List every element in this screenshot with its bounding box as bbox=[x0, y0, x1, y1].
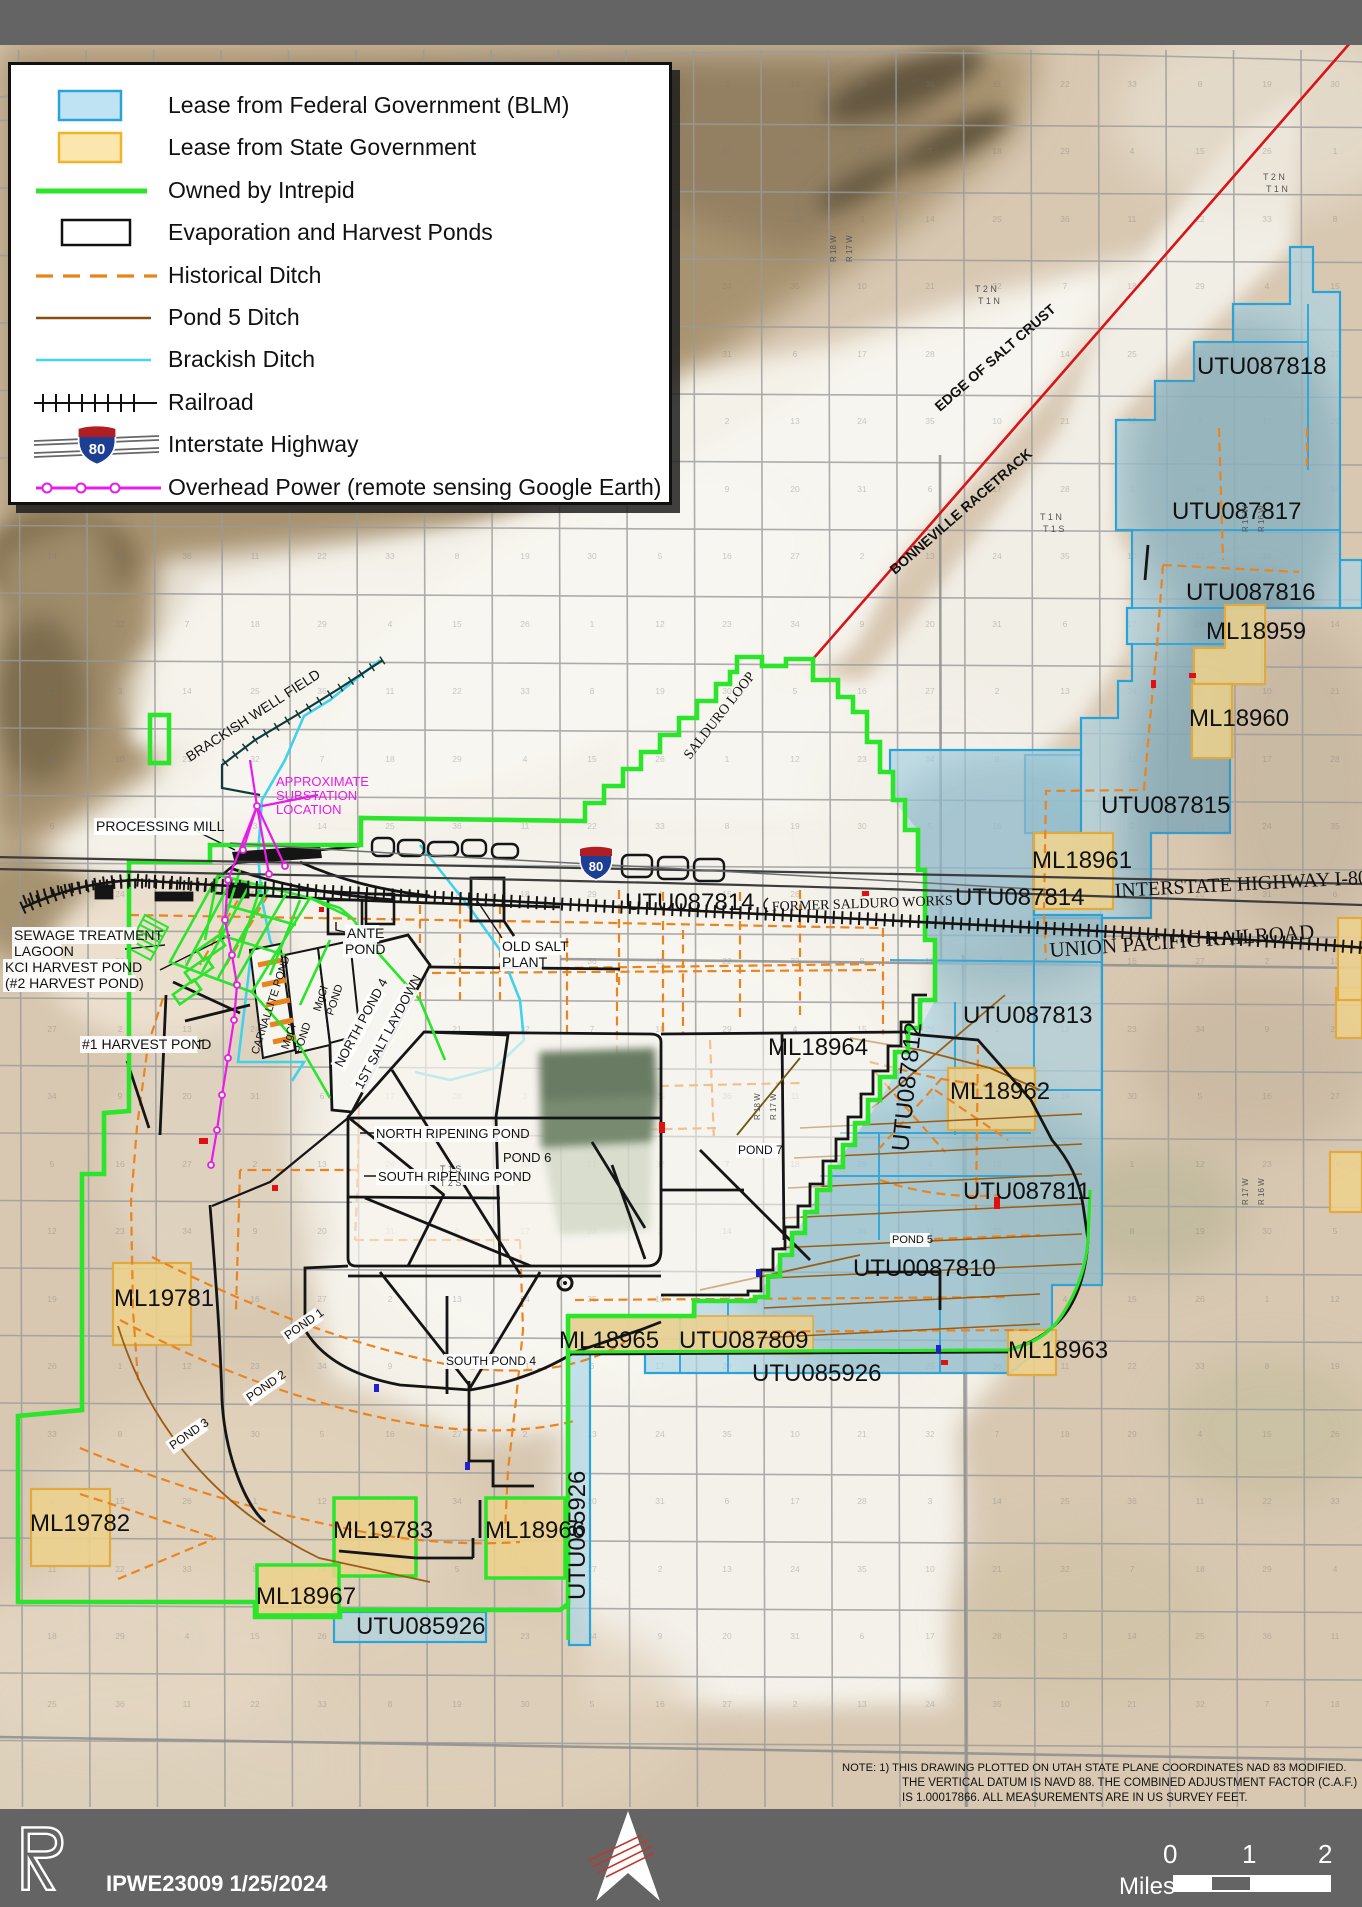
svg-text:ML19783: ML19783 bbox=[333, 1517, 433, 1544]
svg-text:21: 21 bbox=[790, 146, 800, 156]
svg-text:5: 5 bbox=[50, 1159, 55, 1169]
svg-text:9: 9 bbox=[253, 1226, 258, 1236]
svg-text:22: 22 bbox=[115, 1564, 125, 1574]
svg-text:T 2 N: T 2 N bbox=[975, 284, 997, 294]
svg-text:7: 7 bbox=[928, 146, 933, 156]
svg-text:R 17 W: R 17 W bbox=[1241, 1178, 1250, 1205]
svg-text:ML18962: ML18962 bbox=[950, 1078, 1050, 1105]
svg-text:22: 22 bbox=[1262, 1496, 1272, 1506]
svg-text:28: 28 bbox=[925, 349, 935, 359]
svg-text:14: 14 bbox=[1127, 1631, 1137, 1641]
svg-text:36: 36 bbox=[317, 686, 327, 696]
svg-text:17: 17 bbox=[857, 349, 867, 359]
svg-text:6: 6 bbox=[725, 1496, 730, 1506]
svg-text:ML19782: ML19782 bbox=[30, 1510, 130, 1537]
svg-text:4: 4 bbox=[523, 754, 528, 764]
svg-text:T 1 N: T 1 N bbox=[1266, 184, 1288, 194]
svg-text:27: 27 bbox=[317, 1294, 327, 1304]
svg-text:UTU085926: UTU085926 bbox=[752, 1360, 881, 1387]
svg-text:18: 18 bbox=[1060, 1429, 1070, 1439]
svg-text:ML18961: ML18961 bbox=[1032, 847, 1132, 874]
svg-text:19: 19 bbox=[1262, 79, 1272, 89]
svg-text:15: 15 bbox=[587, 754, 597, 764]
svg-text:24: 24 bbox=[925, 1699, 935, 1709]
svg-text:35: 35 bbox=[925, 416, 935, 426]
svg-text:19: 19 bbox=[790, 821, 800, 831]
svg-text:28: 28 bbox=[992, 1631, 1002, 1641]
svg-text:R 17 W: R 17 W bbox=[769, 1093, 778, 1120]
svg-text:16: 16 bbox=[655, 1699, 665, 1709]
svg-text:11: 11 bbox=[993, 79, 1002, 89]
svg-text:1: 1 bbox=[1265, 1294, 1270, 1304]
svg-text:7: 7 bbox=[1265, 1699, 1270, 1709]
svg-text:11: 11 bbox=[1128, 214, 1137, 224]
svg-text:8: 8 bbox=[388, 1699, 393, 1709]
svg-text:7: 7 bbox=[1063, 281, 1068, 291]
svg-text:POND 6: POND 6 bbox=[503, 1150, 551, 1165]
svg-text:PROCESSING MILL: PROCESSING MILL bbox=[96, 818, 225, 834]
svg-text:14: 14 bbox=[1060, 349, 1070, 359]
svg-text:5: 5 bbox=[658, 551, 663, 561]
svg-text:ML18963: ML18963 bbox=[1008, 1337, 1108, 1364]
svg-text:T 1 S: T 1 S bbox=[440, 1164, 461, 1174]
svg-text:UTU087809: UTU087809 bbox=[679, 1327, 808, 1354]
svg-text:32: 32 bbox=[250, 754, 260, 764]
svg-text:14: 14 bbox=[182, 686, 192, 696]
svg-text:13: 13 bbox=[182, 1024, 192, 1034]
svg-text:30: 30 bbox=[1127, 1091, 1137, 1101]
svg-text:29: 29 bbox=[115, 1631, 125, 1641]
svg-text:8: 8 bbox=[1265, 1361, 1270, 1371]
svg-text:36: 36 bbox=[115, 1699, 125, 1709]
svg-text:33: 33 bbox=[1330, 1496, 1340, 1506]
svg-text:14: 14 bbox=[925, 214, 935, 224]
svg-text:1: 1 bbox=[253, 1496, 258, 1506]
svg-text:8: 8 bbox=[590, 686, 595, 696]
svg-text:12: 12 bbox=[655, 619, 665, 629]
svg-text:1: 1 bbox=[118, 1361, 123, 1371]
svg-text:17: 17 bbox=[790, 1496, 800, 1506]
svg-text:24: 24 bbox=[1262, 821, 1272, 831]
svg-text:30: 30 bbox=[520, 1699, 530, 1709]
svg-text:23: 23 bbox=[115, 1226, 125, 1236]
svg-text:SOUTH POND 4: SOUTH POND 4 bbox=[446, 1354, 536, 1368]
svg-text:6: 6 bbox=[793, 349, 798, 359]
svg-text:24: 24 bbox=[115, 889, 125, 899]
svg-text:13: 13 bbox=[925, 551, 935, 561]
svg-text:21: 21 bbox=[1127, 1699, 1137, 1709]
svg-text:19: 19 bbox=[1330, 1361, 1340, 1371]
svg-text:15: 15 bbox=[250, 1631, 260, 1641]
svg-text:33: 33 bbox=[47, 1429, 57, 1439]
svg-text:12: 12 bbox=[790, 754, 800, 764]
svg-text:13: 13 bbox=[790, 416, 800, 426]
svg-text:16: 16 bbox=[1127, 956, 1137, 966]
svg-text:2: 2 bbox=[725, 416, 730, 426]
svg-text:T 1 S: T 1 S bbox=[1043, 524, 1064, 534]
svg-text:28: 28 bbox=[857, 1496, 867, 1506]
svg-text:6: 6 bbox=[928, 484, 933, 494]
svg-text:33: 33 bbox=[1127, 79, 1137, 89]
svg-text:24: 24 bbox=[992, 551, 1002, 561]
svg-text:26: 26 bbox=[520, 619, 530, 629]
svg-text:R 17 W: R 17 W bbox=[845, 235, 854, 262]
svg-text:29: 29 bbox=[452, 754, 462, 764]
svg-text:33: 33 bbox=[182, 1564, 192, 1574]
svg-text:NORTH RIPENING POND: NORTH RIPENING POND bbox=[376, 1126, 530, 1141]
svg-text:32: 32 bbox=[115, 619, 125, 629]
svg-text:80: 80 bbox=[89, 441, 106, 458]
svg-text:UTU085926: UTU085926 bbox=[356, 1613, 485, 1640]
svg-text:1: 1 bbox=[1130, 1159, 1135, 1169]
svg-text:UTU087814: UTU087814 bbox=[955, 884, 1084, 911]
svg-text:1: 1 bbox=[725, 754, 730, 764]
svg-text:30: 30 bbox=[857, 821, 867, 831]
svg-text:35: 35 bbox=[857, 1564, 867, 1574]
svg-text:10: 10 bbox=[722, 146, 732, 156]
svg-text:15: 15 bbox=[1195, 146, 1205, 156]
svg-text:18: 18 bbox=[1330, 1699, 1340, 1709]
svg-text:34: 34 bbox=[790, 619, 800, 629]
svg-text:10: 10 bbox=[992, 416, 1002, 426]
svg-text:R 18 W: R 18 W bbox=[753, 1093, 762, 1120]
svg-text:36: 36 bbox=[182, 551, 192, 561]
svg-text:24: 24 bbox=[857, 416, 867, 426]
svg-text:4: 4 bbox=[388, 619, 393, 629]
svg-text:(#2 HARVEST POND): (#2 HARVEST POND) bbox=[5, 975, 144, 991]
svg-text:32: 32 bbox=[1195, 1699, 1205, 1709]
svg-text:UTU087815: UTU087815 bbox=[1101, 792, 1230, 819]
svg-text:6: 6 bbox=[860, 1631, 865, 1641]
svg-text:31: 31 bbox=[722, 349, 732, 359]
svg-text:22: 22 bbox=[1127, 1361, 1137, 1371]
svg-text:33: 33 bbox=[317, 1699, 327, 1709]
svg-text:THE VERTICAL DATUM IS NAVD 88.: THE VERTICAL DATUM IS NAVD 88. THE COMBI… bbox=[902, 1777, 1357, 1789]
svg-text:34: 34 bbox=[452, 1496, 462, 1506]
svg-text:POND: POND bbox=[345, 941, 385, 957]
svg-text:SEWAGE TREATMENT: SEWAGE TREATMENT bbox=[14, 927, 164, 943]
svg-text:35: 35 bbox=[790, 281, 800, 291]
svg-text:9: 9 bbox=[1265, 1024, 1270, 1034]
svg-text:32: 32 bbox=[857, 146, 867, 156]
svg-text:12: 12 bbox=[1330, 1294, 1340, 1304]
svg-text:16: 16 bbox=[385, 1429, 395, 1439]
svg-text:35: 35 bbox=[47, 754, 57, 764]
svg-text:10: 10 bbox=[925, 1564, 935, 1574]
svg-text:14: 14 bbox=[1330, 619, 1340, 629]
svg-text:23: 23 bbox=[1262, 1159, 1272, 1169]
svg-text:ML18959: ML18959 bbox=[1206, 618, 1306, 645]
svg-text:25: 25 bbox=[1195, 1631, 1205, 1641]
svg-text:4: 4 bbox=[1265, 281, 1270, 291]
svg-text:ML18965: ML18965 bbox=[559, 1327, 659, 1354]
svg-text:UTU0087810: UTU0087810 bbox=[853, 1255, 996, 1282]
svg-text:13: 13 bbox=[317, 1159, 327, 1169]
svg-text:5: 5 bbox=[590, 1699, 595, 1709]
svg-text:29: 29 bbox=[1262, 1564, 1272, 1574]
svg-text:10: 10 bbox=[115, 754, 125, 764]
svg-text:8: 8 bbox=[118, 1429, 123, 1439]
svg-text:26: 26 bbox=[182, 1496, 192, 1506]
svg-text:11: 11 bbox=[1196, 1496, 1205, 1506]
svg-text:23: 23 bbox=[857, 754, 867, 764]
svg-text:5: 5 bbox=[1333, 1226, 1338, 1236]
svg-text:35: 35 bbox=[1330, 821, 1340, 831]
svg-text:20: 20 bbox=[722, 1631, 732, 1641]
svg-text:6: 6 bbox=[1063, 619, 1068, 629]
svg-text:OLD SALT: OLD SALT bbox=[502, 938, 569, 954]
svg-text:3: 3 bbox=[1063, 1631, 1068, 1641]
svg-text:19: 19 bbox=[452, 1699, 462, 1709]
svg-text:13: 13 bbox=[452, 1294, 462, 1304]
svg-text:26: 26 bbox=[1195, 1294, 1205, 1304]
svg-text:10: 10 bbox=[1060, 1699, 1070, 1709]
svg-text:11: 11 bbox=[251, 551, 260, 561]
svg-text:27: 27 bbox=[1195, 956, 1205, 966]
svg-text:NOTE: 1) THIS DRAWING PLOT: NOTE: 1) THIS DRAWING PLOTTED ON UTAH ST… bbox=[842, 1762, 1347, 1774]
svg-text:21: 21 bbox=[857, 1429, 867, 1439]
svg-text:8: 8 bbox=[1198, 79, 1203, 89]
svg-text:28: 28 bbox=[47, 686, 57, 696]
svg-text:LOCATION: LOCATION bbox=[276, 802, 342, 817]
svg-text:7: 7 bbox=[185, 619, 190, 629]
svg-text:POND 5: POND 5 bbox=[892, 1234, 933, 1246]
svg-text:12: 12 bbox=[47, 1226, 57, 1236]
svg-text:36: 36 bbox=[587, 956, 597, 966]
svg-text:15: 15 bbox=[115, 1496, 125, 1506]
svg-text:2: 2 bbox=[388, 1294, 393, 1304]
svg-text:28: 28 bbox=[1330, 754, 1340, 764]
svg-text:T 2 S: T 2 S bbox=[440, 1178, 461, 1188]
svg-text:UTU087818: UTU087818 bbox=[1197, 353, 1326, 380]
svg-text:18: 18 bbox=[1195, 1564, 1205, 1574]
svg-text:UTU087817: UTU087817 bbox=[1172, 498, 1301, 525]
svg-text:T 1 N: T 1 N bbox=[1040, 512, 1062, 522]
svg-text:36: 36 bbox=[1262, 1631, 1272, 1641]
svg-text:2: 2 bbox=[253, 1159, 258, 1169]
svg-text:3: 3 bbox=[725, 79, 730, 89]
svg-text:27: 27 bbox=[925, 686, 935, 696]
svg-text:23: 23 bbox=[1127, 1024, 1137, 1034]
svg-text:29: 29 bbox=[317, 619, 327, 629]
svg-text:22: 22 bbox=[587, 821, 597, 831]
svg-text:32: 32 bbox=[925, 1429, 935, 1439]
svg-text:2: 2 bbox=[523, 1429, 528, 1439]
svg-text:3: 3 bbox=[860, 214, 865, 224]
svg-text:18: 18 bbox=[385, 754, 395, 764]
svg-text:29: 29 bbox=[1195, 281, 1205, 291]
svg-text:33: 33 bbox=[655, 821, 665, 831]
svg-text:4: 4 bbox=[1063, 1294, 1068, 1304]
svg-text:R 16 W: R 16 W bbox=[1257, 505, 1266, 532]
svg-text:3: 3 bbox=[928, 1496, 933, 1506]
svg-text:UTU087814: UTU087814 bbox=[625, 889, 754, 916]
svg-text:ML18967: ML18967 bbox=[256, 1583, 356, 1610]
svg-text:33: 33 bbox=[385, 551, 395, 561]
svg-text:13: 13 bbox=[857, 1699, 867, 1709]
svg-text:8: 8 bbox=[1333, 214, 1338, 224]
svg-text:UTU087813: UTU087813 bbox=[963, 1002, 1092, 1029]
svg-text:25: 25 bbox=[115, 551, 125, 561]
svg-text:25: 25 bbox=[1060, 1496, 1070, 1506]
svg-text:20: 20 bbox=[925, 619, 935, 629]
svg-text:1: 1 bbox=[590, 619, 595, 629]
svg-text:25: 25 bbox=[250, 686, 260, 696]
svg-text:23: 23 bbox=[250, 1361, 260, 1371]
svg-text:12: 12 bbox=[317, 1496, 327, 1506]
svg-text:21: 21 bbox=[1060, 416, 1070, 426]
svg-text:36: 36 bbox=[452, 821, 462, 831]
svg-text:2: 2 bbox=[860, 551, 865, 561]
svg-text:18: 18 bbox=[47, 1631, 57, 1641]
svg-text:23: 23 bbox=[722, 619, 732, 629]
svg-text:6: 6 bbox=[50, 821, 55, 831]
svg-text:34: 34 bbox=[1195, 1024, 1205, 1034]
svg-text:31: 31 bbox=[250, 1091, 260, 1101]
svg-text:17: 17 bbox=[1262, 754, 1272, 764]
svg-text:22: 22 bbox=[317, 551, 327, 561]
svg-text:2: 2 bbox=[118, 1024, 123, 1034]
svg-text:27: 27 bbox=[1330, 1091, 1340, 1101]
svg-text:25: 25 bbox=[857, 79, 867, 89]
svg-text:4: 4 bbox=[1333, 1564, 1338, 1574]
svg-text:14: 14 bbox=[790, 79, 800, 89]
svg-text:27: 27 bbox=[182, 1159, 192, 1169]
svg-text:9: 9 bbox=[725, 484, 730, 494]
svg-text:22: 22 bbox=[452, 686, 462, 696]
svg-text:21: 21 bbox=[1330, 686, 1340, 696]
svg-text:3: 3 bbox=[118, 686, 123, 696]
svg-text:16: 16 bbox=[857, 686, 867, 696]
svg-text:R 18 W: R 18 W bbox=[829, 235, 838, 262]
svg-text:26: 26 bbox=[1330, 1429, 1340, 1439]
svg-text:KCI HARVEST POND: KCI HARVEST POND bbox=[5, 959, 142, 975]
svg-text:30: 30 bbox=[587, 551, 597, 561]
svg-text:11: 11 bbox=[386, 686, 395, 696]
svg-text:APPROXIMATE: APPROXIMATE bbox=[276, 774, 369, 789]
svg-text:20: 20 bbox=[182, 1091, 192, 1101]
svg-text:13: 13 bbox=[722, 1564, 732, 1574]
svg-text:ML18960: ML18960 bbox=[1189, 705, 1289, 732]
svg-text:27: 27 bbox=[47, 1024, 57, 1034]
svg-text:ANTE: ANTE bbox=[347, 925, 384, 941]
svg-text:7: 7 bbox=[320, 754, 325, 764]
svg-text:31: 31 bbox=[992, 619, 1002, 629]
svg-text:#1 HARVEST POND: #1 HARVEST POND bbox=[82, 1036, 211, 1052]
svg-text:31: 31 bbox=[790, 1631, 800, 1641]
svg-text:19: 19 bbox=[47, 1294, 57, 1304]
svg-text:28: 28 bbox=[790, 214, 800, 224]
svg-text:17: 17 bbox=[722, 214, 732, 224]
svg-text:20: 20 bbox=[790, 484, 800, 494]
svg-text:14: 14 bbox=[317, 821, 327, 831]
svg-text:18: 18 bbox=[250, 619, 260, 629]
svg-text:25: 25 bbox=[992, 214, 1002, 224]
svg-text:25: 25 bbox=[47, 1699, 57, 1709]
svg-text:PLANT: PLANT bbox=[502, 954, 548, 970]
svg-text:5: 5 bbox=[1198, 1091, 1203, 1101]
svg-text:19: 19 bbox=[655, 686, 665, 696]
svg-text:2: 2 bbox=[793, 1699, 798, 1709]
svg-text:ML18966: ML18966 bbox=[485, 1517, 585, 1544]
svg-text:29: 29 bbox=[1060, 146, 1070, 156]
svg-text:POND 7: POND 7 bbox=[738, 1143, 783, 1157]
svg-text:16: 16 bbox=[722, 551, 732, 561]
svg-text:13: 13 bbox=[1060, 686, 1070, 696]
svg-text:17: 17 bbox=[925, 1631, 935, 1641]
svg-text:15: 15 bbox=[452, 619, 462, 629]
svg-text:15: 15 bbox=[1330, 281, 1340, 291]
svg-text:UTU087811: UTU087811 bbox=[963, 1178, 1091, 1205]
svg-text:36: 36 bbox=[1127, 1496, 1137, 1506]
svg-text:29: 29 bbox=[1127, 1429, 1137, 1439]
svg-text:10: 10 bbox=[857, 281, 867, 291]
svg-text:2: 2 bbox=[995, 686, 1000, 696]
svg-text:33: 33 bbox=[1195, 1361, 1205, 1371]
svg-text:1: 1 bbox=[1333, 146, 1338, 156]
svg-text:26: 26 bbox=[790, 889, 800, 899]
svg-text:4: 4 bbox=[1130, 146, 1135, 156]
svg-text:5: 5 bbox=[455, 1564, 460, 1574]
svg-text:28: 28 bbox=[1060, 484, 1070, 494]
svg-text:11: 11 bbox=[183, 1699, 192, 1709]
svg-text:20: 20 bbox=[317, 1226, 327, 1236]
svg-text:21: 21 bbox=[925, 281, 935, 291]
svg-text:24: 24 bbox=[655, 1429, 665, 1439]
svg-text:4: 4 bbox=[185, 1631, 190, 1641]
svg-text:31: 31 bbox=[655, 1496, 665, 1506]
svg-text:T 1 N: T 1 N bbox=[978, 296, 1000, 306]
svg-text:2: 2 bbox=[1265, 956, 1270, 966]
svg-text:16: 16 bbox=[1262, 1091, 1272, 1101]
svg-text:24: 24 bbox=[790, 1564, 800, 1574]
svg-text:21: 21 bbox=[47, 619, 57, 629]
svg-text:27: 27 bbox=[722, 1699, 732, 1709]
svg-text:SUBSTATION: SUBSTATION bbox=[276, 788, 357, 803]
svg-text:9: 9 bbox=[860, 619, 865, 629]
svg-text:9: 9 bbox=[388, 1361, 393, 1371]
svg-text:R 16 W: R 16 W bbox=[1257, 1178, 1266, 1205]
svg-text:12: 12 bbox=[1195, 1159, 1205, 1169]
svg-text:30: 30 bbox=[1330, 79, 1340, 89]
svg-text:18: 18 bbox=[992, 146, 1002, 156]
svg-text:14: 14 bbox=[47, 551, 57, 561]
svg-text:9: 9 bbox=[658, 1631, 663, 1641]
svg-text:32: 32 bbox=[1060, 1564, 1070, 1574]
svg-text:11: 11 bbox=[1331, 1631, 1340, 1641]
svg-text:R 17 W: R 17 W bbox=[1241, 505, 1250, 532]
svg-text:34: 34 bbox=[182, 1226, 192, 1236]
svg-text:9: 9 bbox=[118, 1091, 123, 1101]
svg-text:33: 33 bbox=[1262, 214, 1272, 224]
svg-text:8: 8 bbox=[725, 821, 730, 831]
svg-text:35: 35 bbox=[722, 1429, 732, 1439]
svg-text:26: 26 bbox=[1262, 146, 1272, 156]
svg-text:6: 6 bbox=[320, 1091, 325, 1101]
svg-text:5: 5 bbox=[320, 1429, 325, 1439]
svg-text:36: 36 bbox=[1060, 214, 1070, 224]
svg-text:7: 7 bbox=[1130, 1564, 1135, 1574]
svg-text:8: 8 bbox=[860, 956, 865, 966]
svg-text:31: 31 bbox=[857, 484, 867, 494]
svg-text:24: 24 bbox=[722, 281, 732, 291]
svg-text:5: 5 bbox=[793, 686, 798, 696]
svg-text:80: 80 bbox=[589, 859, 603, 874]
svg-text:26: 26 bbox=[317, 1631, 327, 1641]
svg-text:26: 26 bbox=[655, 754, 665, 764]
svg-text:36: 36 bbox=[925, 79, 935, 89]
svg-text:25: 25 bbox=[385, 821, 395, 831]
